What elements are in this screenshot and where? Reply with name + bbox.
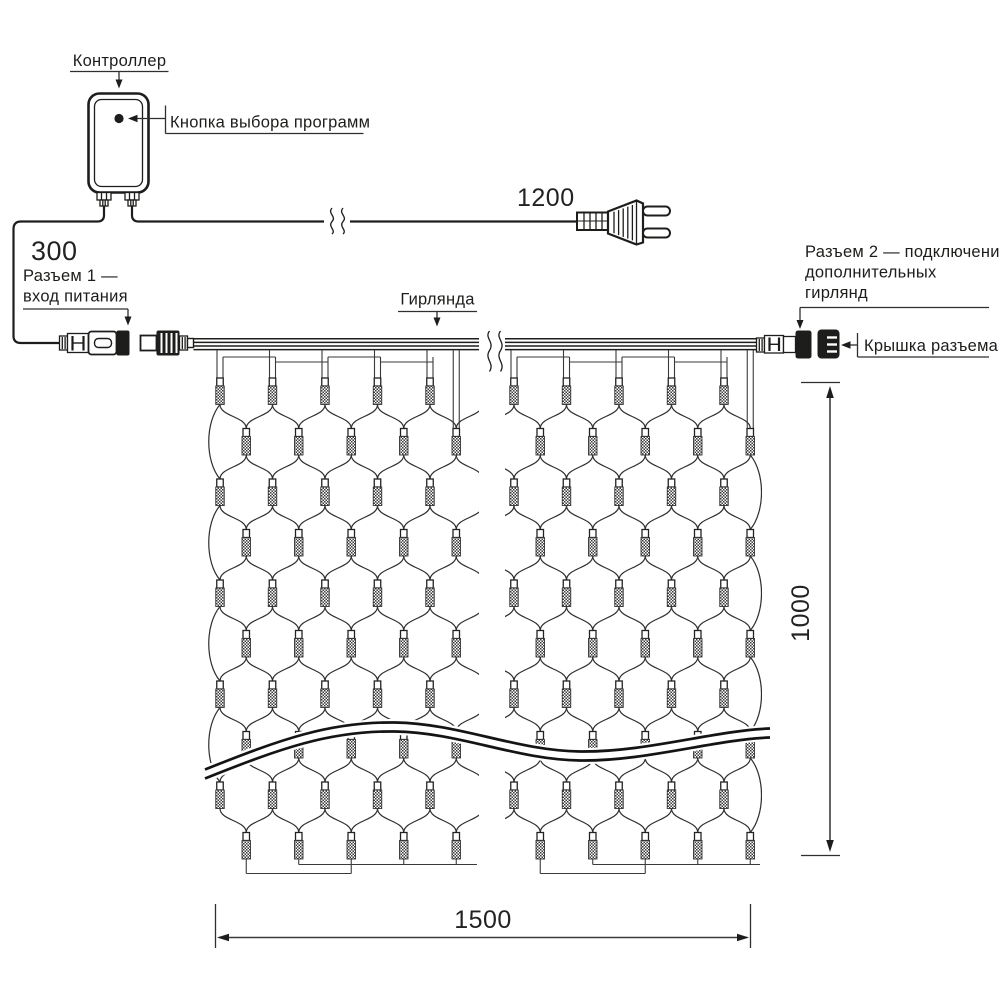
mesh-wire	[325, 809, 351, 833]
led-bulb	[347, 538, 356, 557]
led-bulb-cap	[243, 631, 250, 639]
led-bulb-cap	[243, 530, 250, 538]
arrow-down-icon	[797, 320, 804, 329]
mesh-wire	[273, 506, 299, 530]
mesh-wire	[514, 758, 540, 782]
mesh-wire	[456, 506, 482, 530]
mesh-wire	[724, 455, 750, 479]
led-bulb	[268, 588, 277, 607]
mesh-wire	[593, 405, 619, 429]
mesh-wire	[567, 455, 593, 479]
led-bulb-cap	[537, 732, 544, 740]
led-bulb	[536, 841, 545, 860]
led-bulb-cap	[590, 530, 597, 538]
mesh-wire	[488, 455, 514, 479]
controller-label: Контроллер	[73, 52, 167, 70]
led-bulb	[452, 437, 461, 456]
mesh-wire	[299, 809, 325, 833]
led-bulb	[615, 790, 624, 809]
mesh-wire	[220, 607, 246, 631]
mesh-wire	[567, 405, 593, 429]
mesh-wire	[567, 607, 593, 631]
led-bulb	[268, 689, 277, 708]
net-layer	[209, 350, 762, 874]
mesh-wire	[619, 809, 645, 833]
led-bulb-cap	[563, 479, 570, 487]
mesh-wire	[378, 607, 404, 631]
led-bulb-cap	[695, 530, 702, 538]
led-bulb-cap	[590, 732, 597, 740]
mesh-wire	[351, 809, 377, 833]
mesh-edge-wire	[750, 556, 761, 631]
mesh-wire	[456, 758, 482, 782]
mesh-edge-wire	[750, 758, 761, 833]
mesh-wire	[273, 809, 299, 833]
led-bulb-cap	[511, 479, 518, 487]
mesh-wire	[325, 657, 351, 681]
led-bulb	[268, 790, 277, 809]
led-bulb	[562, 588, 571, 607]
mesh-wire	[698, 657, 724, 681]
mesh-wire	[724, 607, 750, 631]
led-bulb	[242, 437, 251, 456]
led-bulb	[667, 386, 676, 405]
cord-break-mark	[324, 205, 350, 237]
mesh-wire	[299, 657, 325, 681]
mesh-wire	[567, 657, 593, 681]
led-bulb	[347, 841, 356, 860]
program-button-label: Кнопка выбора программ	[170, 114, 370, 132]
mesh-wire	[220, 657, 246, 681]
mesh-wire	[540, 708, 566, 732]
mesh-wire	[351, 506, 377, 530]
program-button-dot[interactable]	[114, 114, 123, 123]
led-bulb	[216, 386, 225, 405]
led-bulb-cap	[511, 681, 518, 689]
mesh-wire	[430, 506, 456, 530]
mesh-wire	[672, 556, 698, 580]
mesh-wire	[593, 657, 619, 681]
led-bulb	[562, 790, 571, 809]
mesh-wire	[378, 405, 404, 429]
led-bulb-cap	[616, 378, 623, 386]
mesh-wire	[567, 809, 593, 833]
plug-prong-top	[643, 207, 670, 216]
mesh-wire	[299, 758, 325, 782]
mesh-edge-wire	[750, 455, 761, 530]
led-bulb-cap	[374, 681, 381, 689]
led-bulb-cap	[296, 631, 303, 639]
arrow-down-icon	[116, 80, 123, 89]
controller-unit	[89, 94, 149, 207]
mesh-wire	[404, 758, 430, 782]
connector2-label-line2: дополнительных	[805, 264, 937, 282]
mesh-wire	[567, 708, 593, 732]
led-bulb	[615, 386, 624, 405]
mesh-wire	[246, 708, 272, 732]
led-bulb	[667, 689, 676, 708]
led-bulb	[720, 689, 729, 708]
led-bulb-cap	[668, 580, 675, 588]
led-bulb	[321, 588, 330, 607]
led-bulb-cap	[721, 782, 728, 790]
led-bulb	[536, 437, 545, 456]
mesh-wire	[593, 556, 619, 580]
led-bulb	[562, 487, 571, 506]
led-bulb	[373, 588, 382, 607]
led-bulb	[452, 538, 461, 557]
led-bulb-cap	[217, 681, 224, 689]
led-bulb	[400, 437, 409, 456]
mesh-wire	[456, 455, 482, 479]
led-bulb	[295, 437, 304, 456]
led-bulb-cap	[401, 833, 408, 841]
mesh-wire	[246, 506, 272, 530]
led-bulb	[746, 437, 755, 456]
mesh-wire	[619, 708, 645, 732]
power-plug	[577, 201, 670, 245]
mesh-wire	[430, 657, 456, 681]
bus-break-mark	[480, 329, 504, 375]
led-bulb-cap	[322, 378, 329, 386]
led-bulb	[295, 639, 304, 658]
led-bulb-cap	[642, 530, 649, 538]
mesh-wire	[724, 657, 750, 681]
plug-body	[608, 201, 643, 245]
mesh-wire	[246, 405, 272, 429]
mesh-wire	[325, 506, 351, 530]
mesh-wire	[325, 556, 351, 580]
led-bulb-cap	[747, 631, 754, 639]
led-bulb	[562, 386, 571, 405]
diagram-canvas: Контроллер Кнопка выбора программ 1200 3…	[0, 0, 1000, 1000]
controller-box-inner	[95, 100, 143, 187]
led-bulb-cap	[453, 429, 460, 437]
led-bulb-cap	[453, 631, 460, 639]
mesh-wire	[220, 809, 246, 833]
connector-1	[60, 331, 194, 356]
mesh-wire	[378, 657, 404, 681]
led-bulb-cap	[401, 429, 408, 437]
mesh-wire	[593, 809, 619, 833]
mesh-wire	[220, 455, 246, 479]
led-bulb-cap	[721, 681, 728, 689]
led-bulb-cap	[269, 479, 276, 487]
led-bulb-cap	[269, 378, 276, 386]
mesh-wire	[273, 405, 299, 429]
led-bulb	[615, 588, 624, 607]
led-bulb	[426, 790, 435, 809]
mesh-wire	[456, 607, 482, 631]
mesh-wire	[351, 607, 377, 631]
plug-prong-bottom	[643, 229, 670, 238]
led-bulb-cap	[511, 782, 518, 790]
led-bulb-cap	[427, 479, 434, 487]
led-bulb	[589, 437, 598, 456]
led-bulb	[641, 437, 650, 456]
mesh-wire	[325, 455, 351, 479]
garland-label: Гирлянда	[400, 291, 475, 309]
led-bulb-cap	[348, 833, 355, 841]
arrow-left-icon	[217, 934, 229, 941]
mesh-wire	[488, 556, 514, 580]
led-bulb-cap	[427, 580, 434, 588]
led-bulb	[426, 386, 435, 405]
mesh-wire	[514, 657, 540, 681]
led-bulb-cap	[453, 530, 460, 538]
led-bulb	[510, 689, 519, 708]
led-bulb-cap	[642, 429, 649, 437]
led-bulb-cap	[747, 833, 754, 841]
led-bulb	[452, 639, 461, 658]
mesh-wire	[456, 405, 482, 429]
mesh-wire	[672, 607, 698, 631]
led-bulb-cap	[590, 631, 597, 639]
connector2-label-line1: Разъем 2 — подключение	[805, 243, 1000, 261]
led-bulb	[746, 538, 755, 557]
mesh-wire	[456, 657, 482, 681]
mesh-wire	[378, 506, 404, 530]
led-bulb	[295, 841, 304, 860]
mesh-wire	[351, 657, 377, 681]
mesh-wire	[514, 455, 540, 479]
garland-bus	[194, 339, 757, 350]
mesh-wire	[540, 455, 566, 479]
led-bulb	[536, 639, 545, 658]
mesh-wire	[619, 607, 645, 631]
mesh-wire	[220, 708, 246, 732]
mesh-wire	[645, 657, 671, 681]
mesh-wire	[299, 607, 325, 631]
mesh-wire	[299, 556, 325, 580]
led-bulb	[321, 790, 330, 809]
mesh-wire	[378, 809, 404, 833]
led-bulb	[641, 538, 650, 557]
connector2-tip	[796, 331, 812, 359]
mesh-wire	[593, 455, 619, 479]
mesh-wire	[645, 455, 671, 479]
connector1-label-line2: вход питания	[23, 288, 128, 306]
led-bulb-cap	[563, 681, 570, 689]
led-bulb-cap	[616, 580, 623, 588]
mesh-wire	[645, 506, 671, 530]
led-bulb	[373, 790, 382, 809]
led-bulb-cap	[563, 378, 570, 386]
lead-length-label: 300	[31, 236, 78, 266]
led-bulb-cap	[616, 479, 623, 487]
led-bulb-cap	[668, 378, 675, 386]
mesh-wire	[724, 506, 750, 530]
led-bulb	[536, 538, 545, 557]
led-bulb	[242, 841, 251, 860]
led-bulb	[373, 689, 382, 708]
mesh-wire	[514, 809, 540, 833]
led-bulb-cap	[322, 479, 329, 487]
led-bulb-cap	[348, 429, 355, 437]
mesh-wire	[698, 607, 724, 631]
led-bulb-cap	[269, 580, 276, 588]
led-bulb	[720, 386, 729, 405]
mesh-edge-wire	[209, 506, 220, 581]
mesh-wire	[404, 809, 430, 833]
led-bulb	[216, 689, 225, 708]
mesh-wire	[299, 506, 325, 530]
led-bulb-cap	[217, 782, 224, 790]
led-bulb-cap	[296, 530, 303, 538]
mesh-wire	[567, 556, 593, 580]
led-bulb-cap	[537, 429, 544, 437]
connector1-nut	[117, 331, 130, 356]
led-bulb	[373, 487, 382, 506]
mesh-wire	[540, 506, 566, 530]
led-bulb	[694, 437, 703, 456]
mesh-wire	[724, 809, 750, 833]
led-bulb	[400, 639, 409, 658]
mesh-wire	[220, 405, 246, 429]
mesh-wire	[488, 708, 514, 732]
mesh-wire	[488, 657, 514, 681]
arrow-right-icon	[737, 934, 749, 941]
led-bulb-cap	[427, 782, 434, 790]
leader-lines	[23, 72, 989, 358]
led-bulb	[242, 639, 251, 658]
led-bulb-cap	[348, 530, 355, 538]
led-bulb-cap	[668, 479, 675, 487]
mesh-wire	[672, 708, 698, 732]
mesh-wire	[273, 455, 299, 479]
led-bulb	[694, 538, 703, 557]
led-bulb	[641, 639, 650, 658]
mesh-wire	[488, 758, 514, 782]
led-bulb-cap	[217, 378, 224, 386]
led-bulb	[667, 790, 676, 809]
mesh-wire	[220, 556, 246, 580]
led-bulb	[321, 386, 330, 405]
mesh-wire	[404, 607, 430, 631]
mesh-wire	[645, 809, 671, 833]
mesh-wire	[540, 405, 566, 429]
led-bulb-cap	[427, 681, 434, 689]
led-bulb-cap	[747, 429, 754, 437]
mesh-wire	[645, 405, 671, 429]
led-bulb-cap	[401, 530, 408, 538]
arrow-left-icon	[841, 341, 851, 348]
controller-terminals	[97, 193, 139, 207]
mesh-wire	[299, 405, 325, 429]
mesh-wire	[404, 405, 430, 429]
led-bulb	[641, 841, 650, 860]
led-bulb	[746, 841, 755, 860]
mesh-wire	[456, 809, 482, 833]
mesh-wire	[351, 455, 377, 479]
mesh-wire	[672, 758, 698, 782]
mesh-wire	[378, 556, 404, 580]
connector2-label-line3: гирлянд	[805, 284, 868, 302]
mesh-wire	[514, 506, 540, 530]
led-bulb	[216, 790, 225, 809]
mesh-wire	[273, 556, 299, 580]
connector1-label-line1: Разъем 1 —	[23, 267, 118, 285]
mesh-wire	[619, 556, 645, 580]
led-bulb-cap	[348, 631, 355, 639]
mesh-wire	[246, 455, 272, 479]
led-bulb	[295, 538, 304, 557]
arrow-down-icon	[125, 317, 132, 326]
led-bulb-cap	[243, 429, 250, 437]
led-bulb	[242, 538, 251, 557]
led-bulb	[510, 386, 519, 405]
led-bulb-cap	[374, 378, 381, 386]
led-bulb	[589, 841, 598, 860]
led-bulb	[694, 639, 703, 658]
mesh-wire	[404, 556, 430, 580]
net-height-label: 1000	[787, 584, 815, 642]
arrow-down-icon	[434, 318, 441, 327]
mesh-wire	[593, 708, 619, 732]
led-bulb	[562, 689, 571, 708]
mesh-wire	[698, 506, 724, 530]
mesh-wire	[619, 657, 645, 681]
led-bulb	[589, 639, 598, 658]
mesh-wire	[488, 405, 514, 429]
mesh-wire	[430, 405, 456, 429]
led-bulb-cap	[695, 429, 702, 437]
led-bulb-cap	[695, 833, 702, 841]
led-bulb	[400, 538, 409, 557]
led-bulb-cap	[563, 782, 570, 790]
net-half	[209, 350, 483, 874]
led-bulb-cap	[269, 681, 276, 689]
led-bulb-cap	[642, 732, 649, 740]
garland-diagram: Контроллер Кнопка выбора программ 1200 3…	[0, 0, 1000, 1000]
mesh-wire	[325, 405, 351, 429]
led-bulb	[347, 740, 356, 759]
led-bulb-cap	[721, 378, 728, 386]
led-bulb-cap	[453, 833, 460, 841]
led-bulb-cap	[243, 833, 250, 841]
mesh-edge-wire	[750, 657, 761, 732]
mesh-wire	[273, 657, 299, 681]
mesh-wire	[593, 607, 619, 631]
mesh-wire	[514, 556, 540, 580]
mesh-wire	[672, 405, 698, 429]
mesh-wire	[698, 455, 724, 479]
connector-cap-label: Крышка разъема	[864, 337, 999, 355]
mesh-wire	[488, 607, 514, 631]
mesh-wire	[273, 708, 299, 732]
mesh-wire	[540, 657, 566, 681]
mesh-wire	[698, 758, 724, 782]
led-bulb-cap	[374, 782, 381, 790]
led-bulb	[400, 740, 409, 759]
led-bulb	[321, 487, 330, 506]
led-bulb	[720, 588, 729, 607]
mesh-wire	[540, 607, 566, 631]
mesh-wire	[698, 405, 724, 429]
led-bulb	[589, 538, 598, 557]
led-bulb-cap	[427, 378, 434, 386]
led-bulb	[510, 790, 519, 809]
mesh-wire	[404, 657, 430, 681]
led-bulb	[426, 689, 435, 708]
led-bulb	[746, 639, 755, 658]
mesh-wire	[724, 556, 750, 580]
mesh-wire	[724, 405, 750, 429]
mesh-wire	[430, 809, 456, 833]
mesh-wire	[672, 657, 698, 681]
mesh-wire	[540, 809, 566, 833]
led-bulb-cap	[537, 833, 544, 841]
